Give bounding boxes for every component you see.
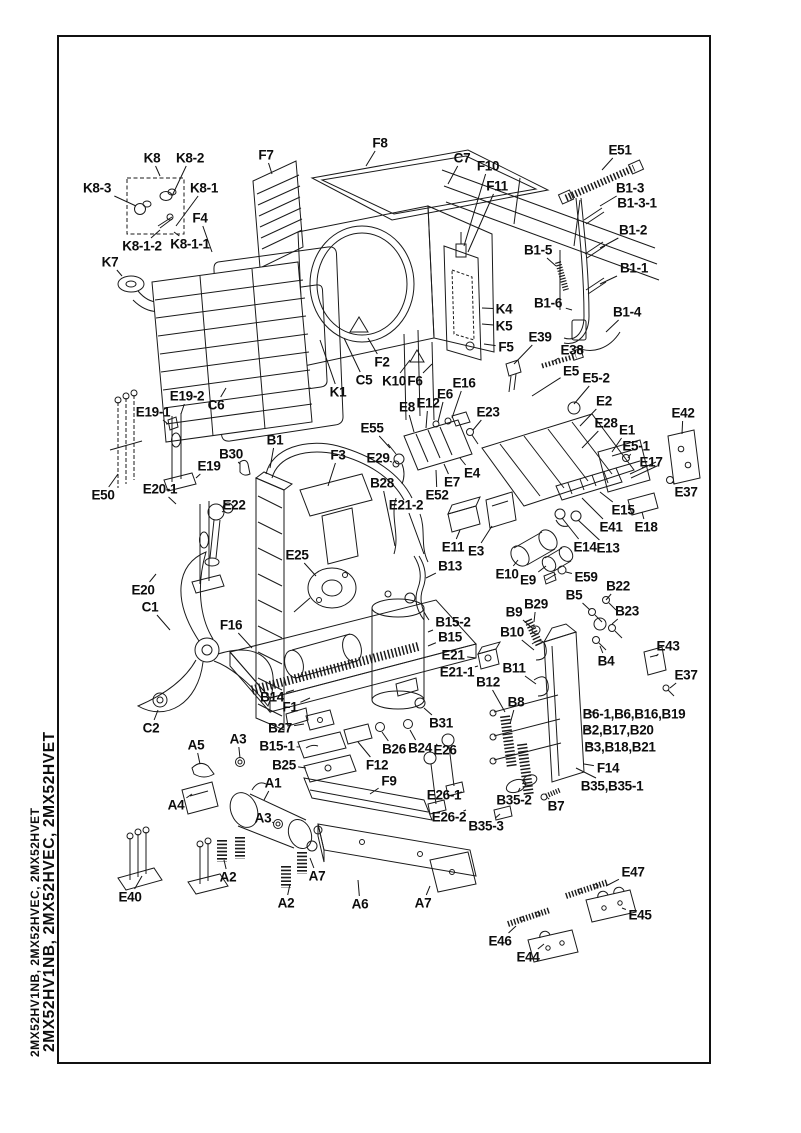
part-label-b3-b18-b21: B3,B18,B21 <box>584 740 655 754</box>
part-label-f2: F2 <box>374 355 389 369</box>
part-label-b2-b17-b20: B2,B17,B20 <box>582 723 653 737</box>
part-label-e23: E23 <box>476 405 499 419</box>
part-label-b1-3-1: B1-3-1 <box>617 196 656 210</box>
part-label-e21: E21 <box>441 648 464 662</box>
part-label-e13: E13 <box>596 541 619 555</box>
part-label-e2: E2 <box>596 394 612 408</box>
part-label-k8-1-1: K8-1-1 <box>170 237 209 251</box>
part-label-e20-1: E20-1 <box>143 482 178 496</box>
part-label-b15-1: B15-1 <box>259 739 294 753</box>
part-label-e19-2: E19-2 <box>170 389 205 403</box>
part-label-f12: F12 <box>366 758 388 772</box>
part-label-e17: E17 <box>639 455 662 469</box>
part-label-f4: F4 <box>192 211 207 225</box>
part-label-e46: E46 <box>488 934 511 948</box>
part-label-e22: E22 <box>222 498 245 512</box>
part-label-e59: E59 <box>574 570 597 584</box>
part-label-e47: E47 <box>621 865 644 879</box>
part-label-b23: B23 <box>615 604 639 618</box>
part-label-e18: E18 <box>634 520 657 534</box>
part-label-e5: E5 <box>563 364 579 378</box>
part-label-b10: B10 <box>500 625 524 639</box>
part-label-f14: F14 <box>597 761 619 775</box>
parts-diagram-page: 2MX52HV1NB, 2MX52HVEC, 2MX52HVET 2MX52HV… <box>0 0 801 1133</box>
part-label-b1-3: B1-3 <box>616 181 644 195</box>
part-label-b35-b35-1: B35,B35-1 <box>581 779 644 793</box>
part-label-a3: A3 <box>230 732 247 746</box>
part-label-f6: F6 <box>407 374 422 388</box>
part-label-e40: E40 <box>118 890 141 904</box>
part-label-e5-2: E5-2 <box>582 371 609 385</box>
part-label-b27: B27 <box>268 721 292 735</box>
part-label-e20: E20 <box>131 583 154 597</box>
part-label-f7: F7 <box>258 148 273 162</box>
part-label-e16: E16 <box>452 376 475 390</box>
part-label-b7: B7 <box>548 799 565 813</box>
part-label-e51: E51 <box>608 143 631 157</box>
part-label-e5-1: E5-1 <box>622 439 649 453</box>
part-label-b1-2: B1-2 <box>619 223 647 237</box>
part-label-a3: A3 <box>255 811 272 825</box>
part-label-e15: E15 <box>611 503 634 517</box>
part-label-b6-1-b6-b16-b19: B6-1,B6,B16,B19 <box>583 707 686 721</box>
part-label-e42: E42 <box>671 406 694 420</box>
part-label-e21-1: E21-1 <box>440 665 475 679</box>
part-label-k1: K1 <box>330 385 347 399</box>
part-label-b4: B4 <box>598 654 615 668</box>
part-label-b22: B22 <box>606 579 630 593</box>
part-label-b8: B8 <box>508 695 525 709</box>
part-label-b25: B25 <box>272 758 296 772</box>
part-label-e50: E50 <box>91 488 114 502</box>
part-label-e12: E12 <box>416 396 439 410</box>
part-label-e1: E1 <box>619 423 635 437</box>
part-label-e14: E14 <box>573 540 596 554</box>
part-label-b9: B9 <box>506 605 523 619</box>
part-label-e44: E44 <box>516 950 539 964</box>
part-label-k8-1-2: K8-1-2 <box>122 239 161 253</box>
part-label-e25: E25 <box>285 548 308 562</box>
part-label-e45: E45 <box>628 908 651 922</box>
part-label-b1-5: B1-5 <box>524 243 552 257</box>
part-label-b14: B14 <box>260 690 284 704</box>
part-label-k7: K7 <box>102 255 119 269</box>
part-label-a7: A7 <box>415 896 432 910</box>
part-label-e19: E19 <box>197 459 220 473</box>
part-label-b26: B26 <box>382 742 406 756</box>
part-label-e11: E11 <box>442 540 464 554</box>
part-label-e38: E38 <box>560 343 583 357</box>
part-label-e3: E3 <box>468 544 484 558</box>
part-label-e41: E41 <box>599 520 622 534</box>
part-label-f16: F16 <box>220 618 242 632</box>
part-label-f11: F11 <box>486 179 508 193</box>
part-label-e19-1: E19-1 <box>136 405 171 419</box>
part-label-e26: E26 <box>433 743 456 757</box>
part-label-c7: C7 <box>454 151 471 165</box>
part-label-a5: A5 <box>188 738 205 752</box>
part-label-b11: B11 <box>502 661 525 675</box>
part-label-f1: F1 <box>282 700 297 714</box>
part-label-e26-2: E26-2 <box>432 810 467 824</box>
part-label-b12: B12 <box>476 675 500 689</box>
part-label-a2: A2 <box>278 896 295 910</box>
part-label-b29: B29 <box>524 597 548 611</box>
part-labels-layer: K8K8-2K8-3K8-1F4K8-1-2K8-1-1K7F7F8C7F10F… <box>0 0 801 1133</box>
part-label-e28: E28 <box>594 416 617 430</box>
part-label-b24: B24 <box>408 741 432 755</box>
part-label-k8-2: K8-2 <box>176 151 204 165</box>
part-label-k8: K8 <box>144 151 161 165</box>
part-label-e39: E39 <box>528 330 551 344</box>
part-label-e9: E9 <box>520 573 536 587</box>
part-label-a4: A4 <box>168 798 185 812</box>
part-label-b13: B13 <box>438 559 462 573</box>
part-label-e52: E52 <box>425 488 448 502</box>
part-label-f3: F3 <box>330 448 345 462</box>
part-label-e8: E8 <box>399 400 415 414</box>
part-label-f8: F8 <box>372 136 387 150</box>
part-label-k10: K10 <box>382 374 406 388</box>
part-label-b1-6: B1-6 <box>534 296 562 310</box>
part-label-b35-2: B35-2 <box>496 793 531 807</box>
part-label-b1: B1 <box>267 433 284 447</box>
part-label-c6: C6 <box>208 398 225 412</box>
part-label-f5: F5 <box>498 340 513 354</box>
part-label-f10: F10 <box>477 159 499 173</box>
part-label-e55: E55 <box>360 421 383 435</box>
part-label-f9: F9 <box>381 774 396 788</box>
part-label-e43: E43 <box>656 639 679 653</box>
part-label-e7: E7 <box>444 475 460 489</box>
part-label-a2: A2 <box>220 870 237 884</box>
part-label-e10: E10 <box>495 567 518 581</box>
part-label-a6: A6 <box>352 897 369 911</box>
part-label-b35-3: B35-3 <box>468 819 503 833</box>
part-label-k8-3: K8-3 <box>83 181 111 195</box>
part-label-a1: A1 <box>265 776 282 790</box>
part-label-k5: K5 <box>496 319 513 333</box>
part-label-b5: B5 <box>566 588 583 602</box>
part-label-e4: E4 <box>464 466 480 480</box>
part-label-e29: E29 <box>366 451 389 465</box>
part-label-b15: B15 <box>438 630 462 644</box>
part-label-e37: E37 <box>674 485 697 499</box>
part-label-b28: B28 <box>370 476 394 490</box>
part-label-k4: K4 <box>496 302 513 316</box>
part-label-b15-2: B15-2 <box>435 615 470 629</box>
part-label-b1-4: B1-4 <box>613 305 641 319</box>
part-label-c1: C1 <box>142 600 159 614</box>
part-label-e21-2: E21-2 <box>389 498 424 512</box>
part-label-e26-1: E26-1 <box>427 788 462 802</box>
part-label-b30: B30 <box>219 447 243 461</box>
part-label-e37: E37 <box>674 668 697 682</box>
part-label-a7: A7 <box>309 869 326 883</box>
part-label-k8-1: K8-1 <box>190 181 218 195</box>
part-label-b31: B31 <box>429 716 453 730</box>
part-label-c5: C5 <box>356 373 373 387</box>
part-label-b1-1: B1-1 <box>620 261 648 275</box>
part-label-c2: C2 <box>143 721 160 735</box>
